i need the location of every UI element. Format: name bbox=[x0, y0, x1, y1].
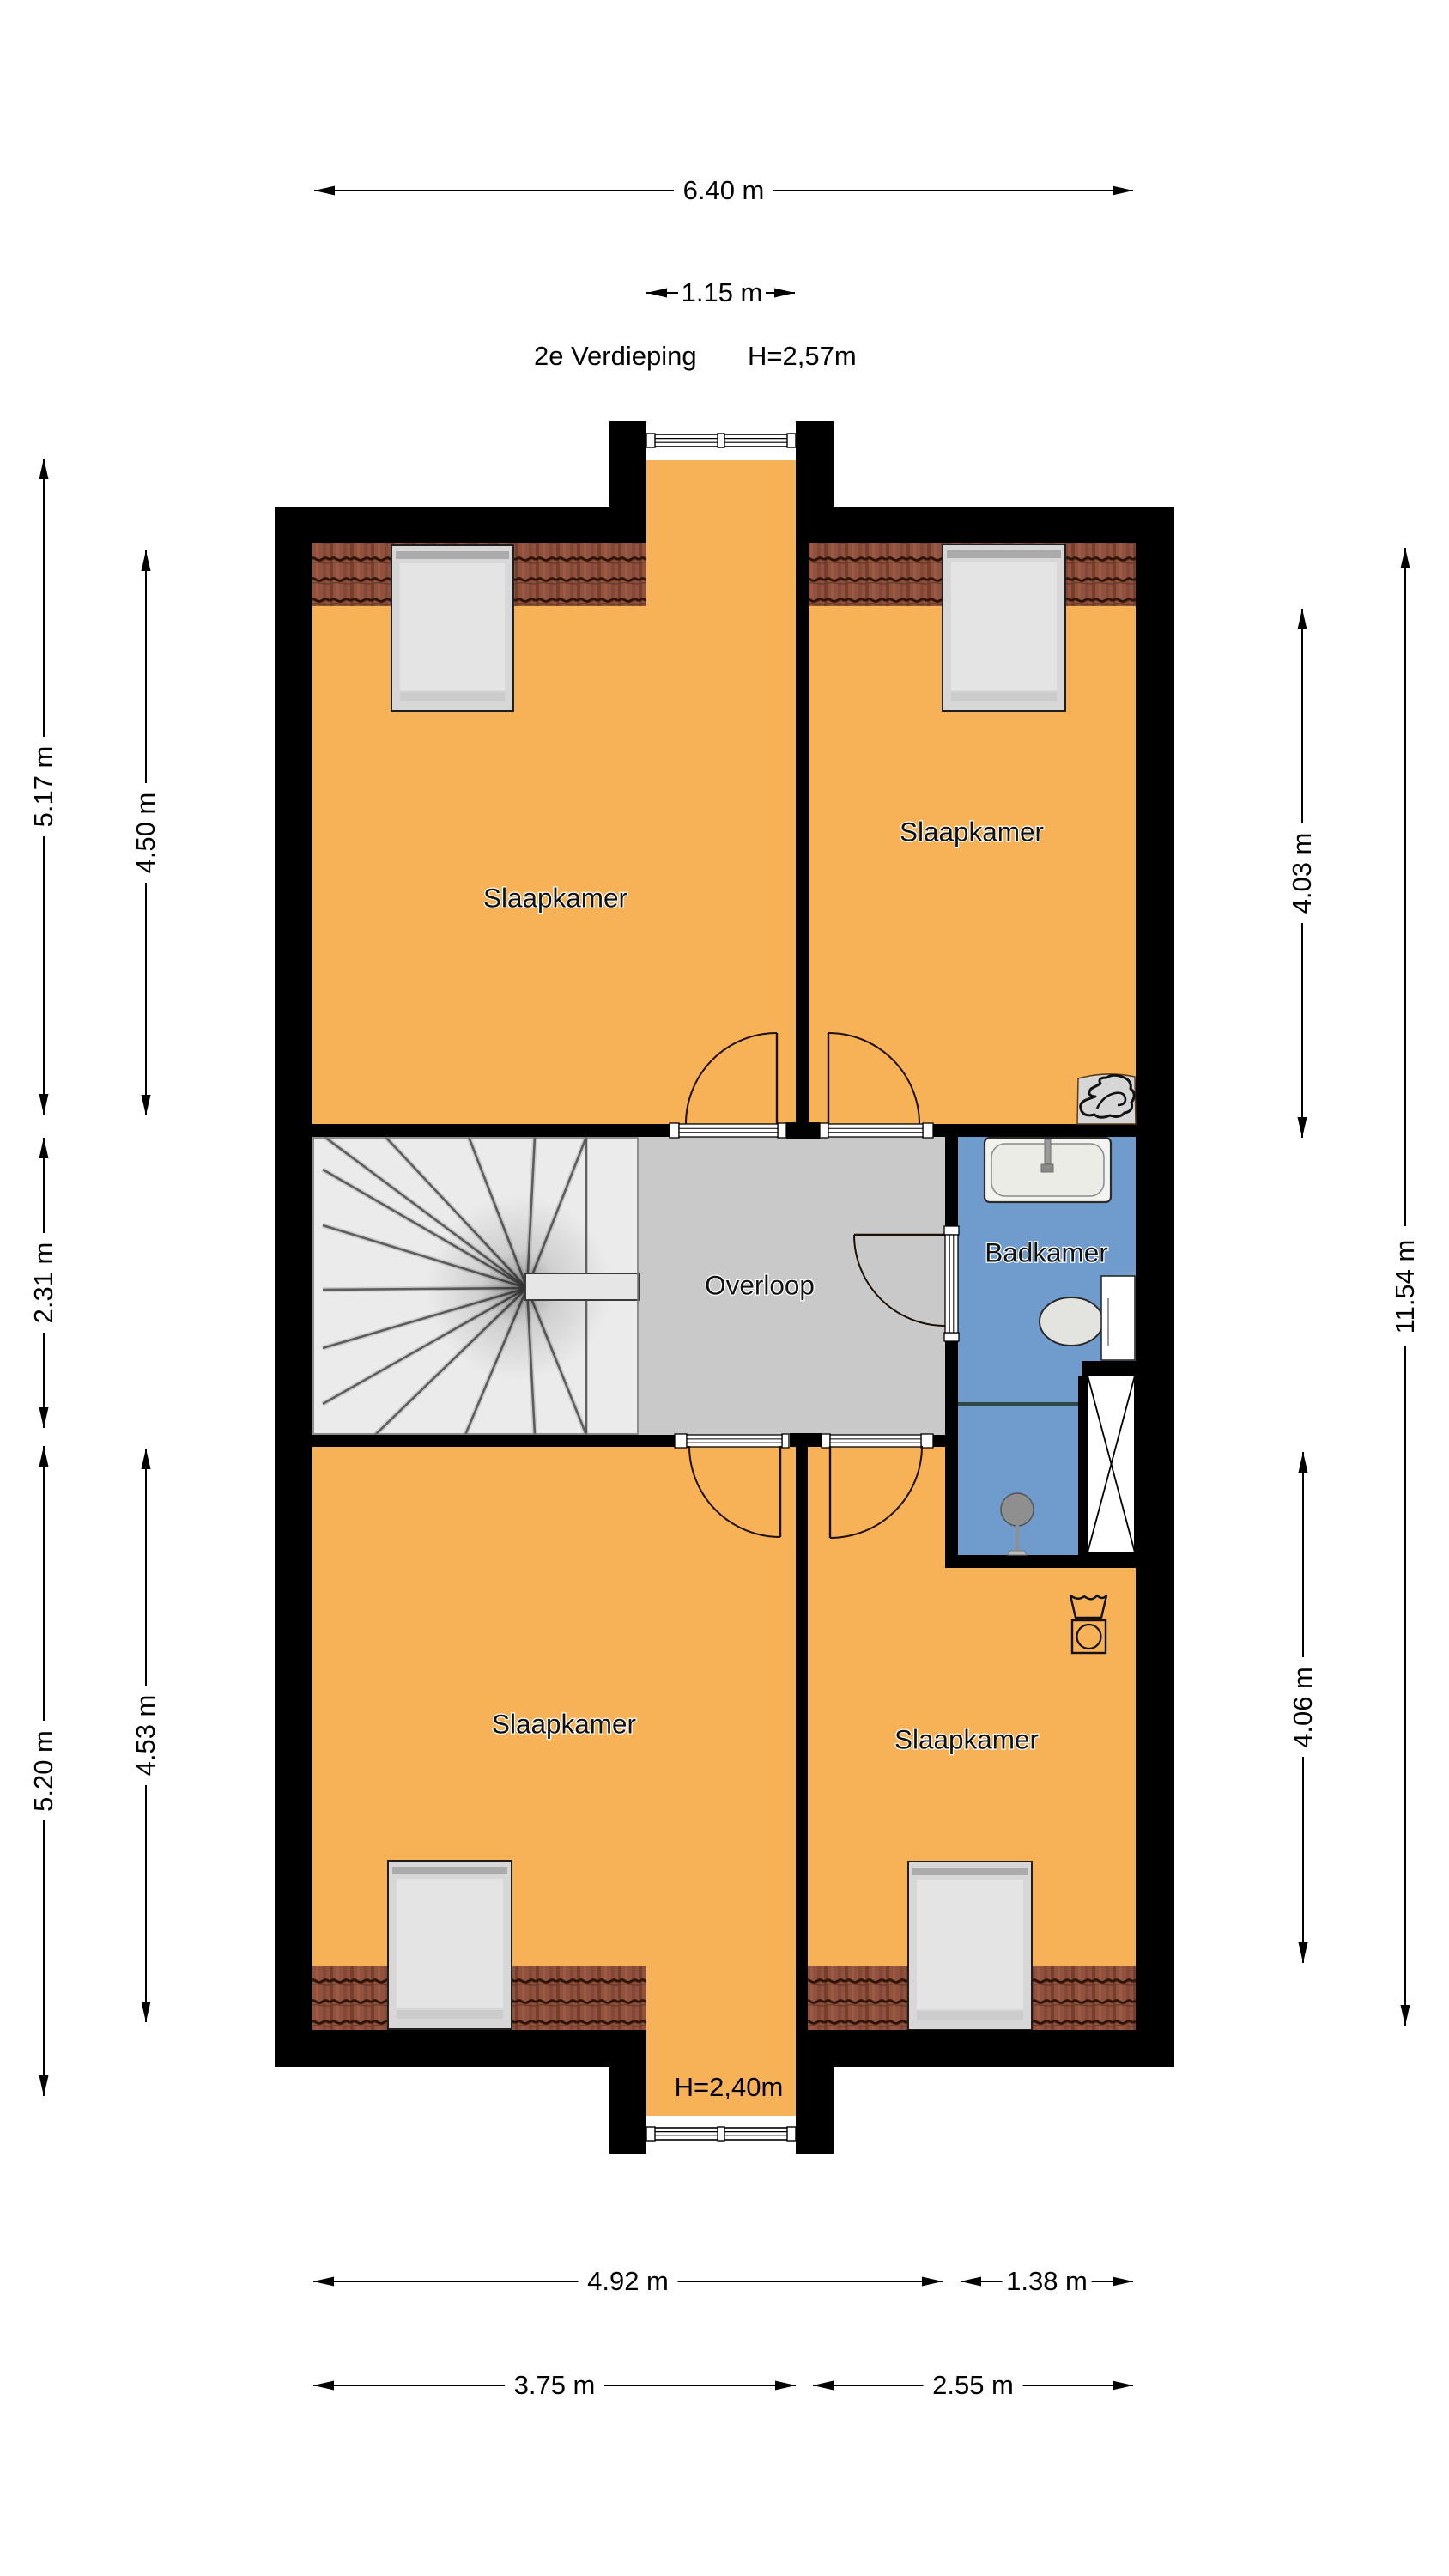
svg-text:H=2,40m: H=2,40m bbox=[675, 2072, 784, 2102]
svg-text:4.50 m: 4.50 m bbox=[130, 793, 161, 874]
svg-text:Slaapkamer: Slaapkamer bbox=[900, 816, 1044, 847]
svg-text:Slaapkamer: Slaapkamer bbox=[492, 1708, 636, 1739]
svg-text:Overloop: Overloop bbox=[705, 1269, 815, 1300]
svg-text:5.17 m: 5.17 m bbox=[28, 746, 58, 828]
svg-text:1.38 m: 1.38 m bbox=[1006, 2266, 1088, 2296]
svg-text:4.53 m: 4.53 m bbox=[130, 1695, 161, 1777]
svg-text:2.31 m: 2.31 m bbox=[28, 1242, 58, 1324]
svg-text:4.03 m: 4.03 m bbox=[1287, 833, 1317, 914]
svg-text:H=2,57m: H=2,57m bbox=[748, 341, 857, 371]
svg-text:2e Verdieping: 2e Verdieping bbox=[534, 341, 697, 371]
svg-text:11.54 m: 11.54 m bbox=[1390, 1240, 1420, 1334]
svg-text:2.55 m: 2.55 m bbox=[932, 2370, 1014, 2400]
svg-text:4.06 m: 4.06 m bbox=[1288, 1667, 1318, 1748]
svg-text:6.40 m: 6.40 m bbox=[683, 175, 765, 205]
svg-text:3.75 m: 3.75 m bbox=[514, 2370, 596, 2400]
svg-text:Slaapkamer: Slaapkamer bbox=[894, 1723, 1039, 1754]
svg-text:5.20 m: 5.20 m bbox=[28, 1730, 58, 1812]
svg-text:Slaapkamer: Slaapkamer bbox=[483, 882, 627, 913]
svg-text:4.92 m: 4.92 m bbox=[587, 2266, 669, 2296]
svg-text:1.15 m: 1.15 m bbox=[682, 277, 763, 307]
svg-text:Badkamer: Badkamer bbox=[985, 1236, 1108, 1267]
